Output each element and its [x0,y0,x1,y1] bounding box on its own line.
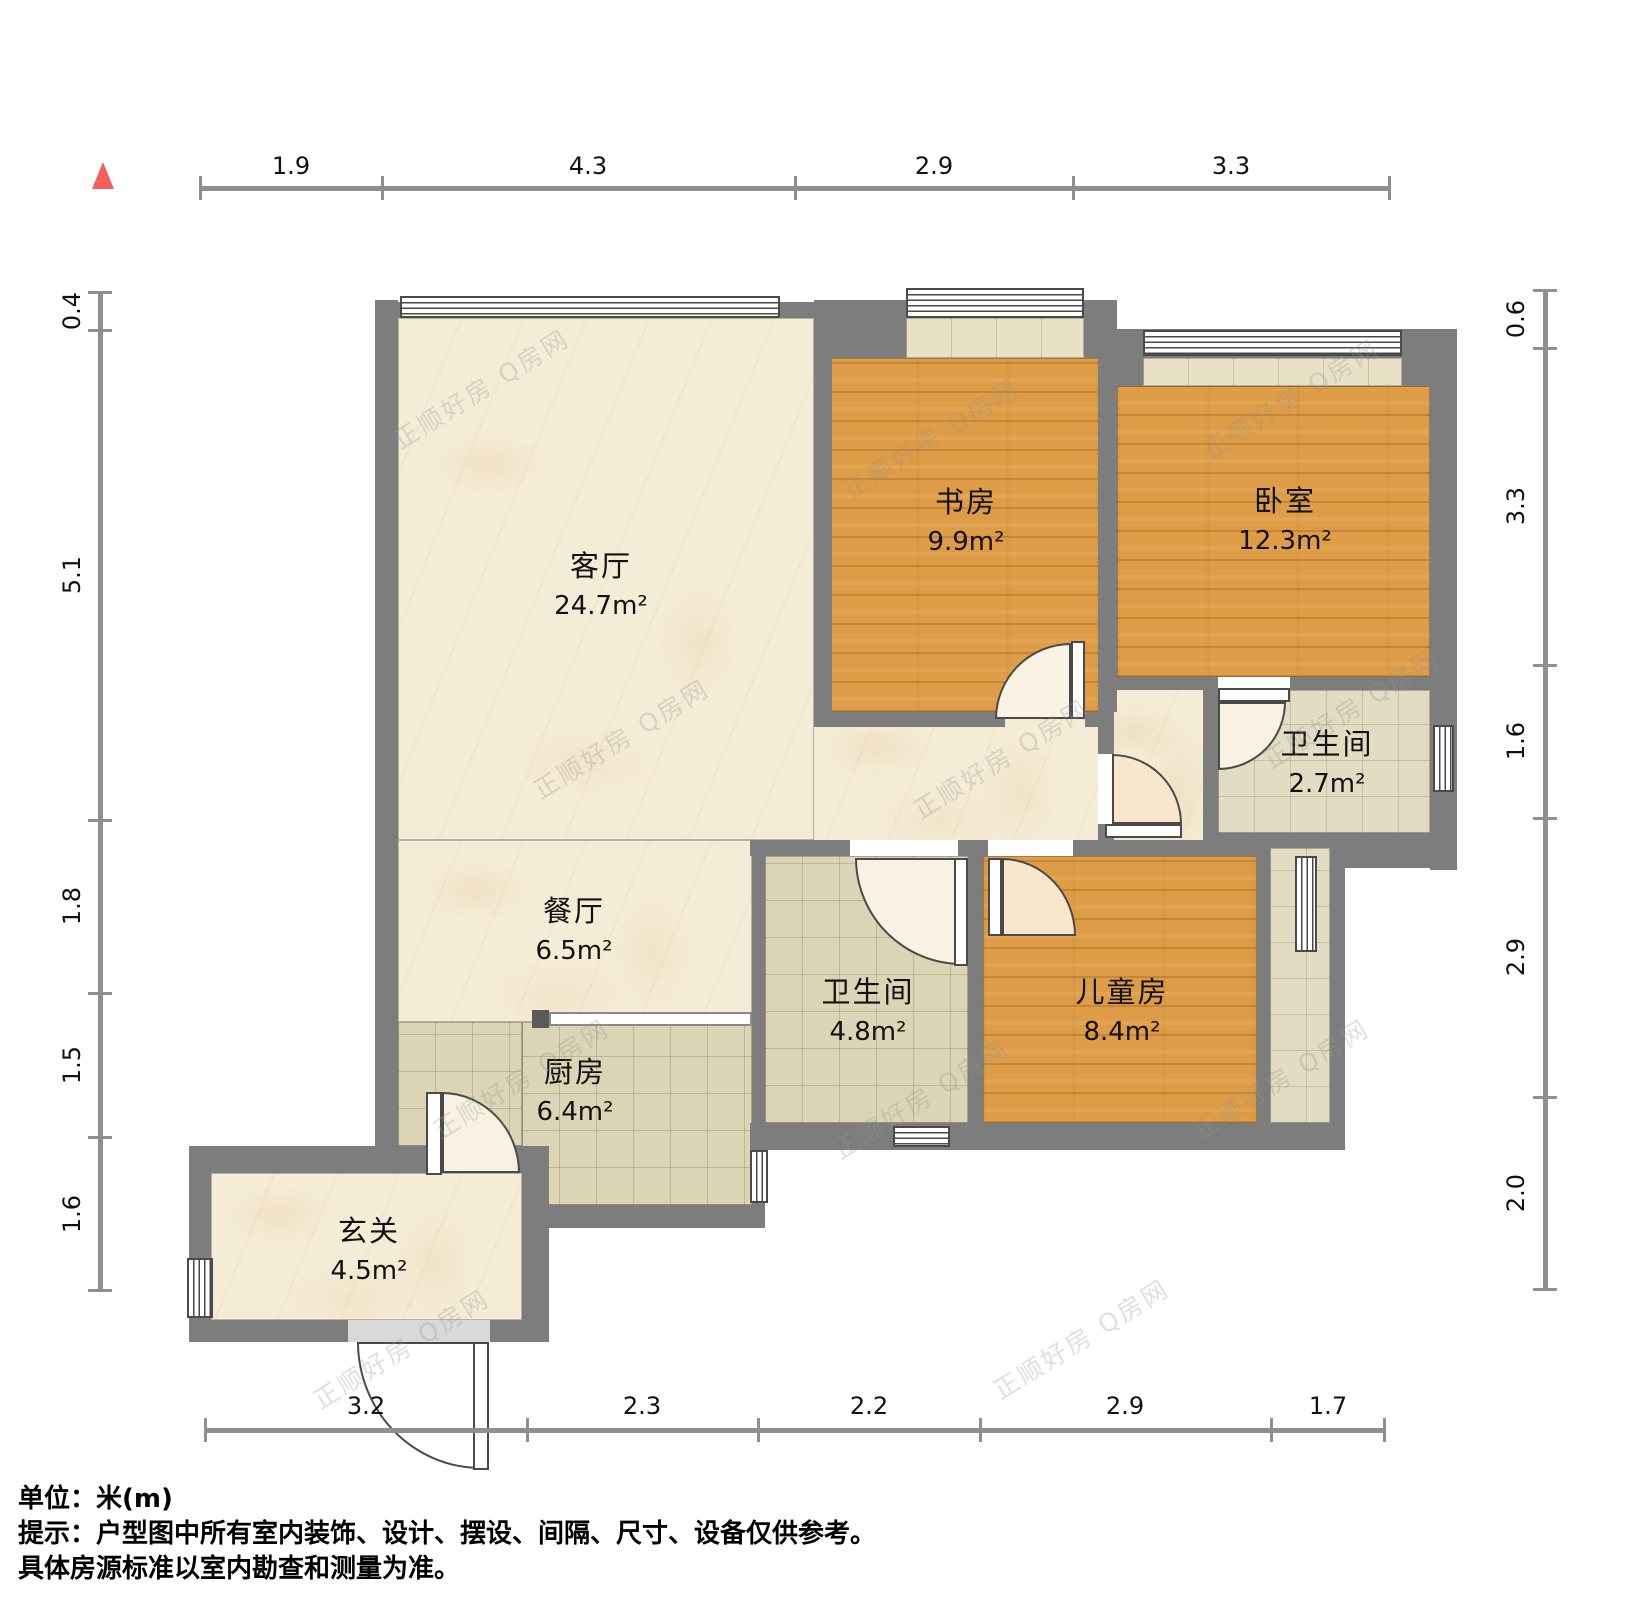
room-name: 书房 [927,479,1004,521]
dim-label-bottom: 1.7 [1309,1392,1347,1420]
door-leaf-bath-main [954,858,968,966]
wall-kids-right [1257,848,1270,1123]
room-name: 厨房 [536,1049,613,1091]
ruler-tick [1533,1096,1557,1099]
room-label-kids: 儿童房 8.4m² [1075,969,1168,1047]
ruler-tick [526,1418,529,1442]
ruler-tick [1533,817,1557,820]
watermark: 正顺好房 Q房网 [986,1269,1176,1406]
dim-label-top: 1.9 [272,152,310,180]
dim-label-top: 2.9 [915,152,953,180]
room-area: 8.4m² [1075,1017,1168,1047]
dim-label-bottom: 2.3 [623,1392,661,1420]
wall-kitchen-bottom [522,1205,765,1228]
ruler-tick [1072,176,1075,200]
wall-bath-small-top [1290,677,1457,690]
room-name: 餐厅 [535,888,612,930]
room-label-entry: 玄关 4.5m² [330,1208,407,1286]
ruler-tick [1383,1418,1386,1442]
ruler-tick [88,291,112,294]
room-name: 客厅 [554,543,648,585]
floor-corridor [814,712,1098,840]
dim-label-left: 0.4 [58,292,86,330]
dim-label-top: 4.3 [569,152,607,180]
door-leaf-study [1071,641,1085,719]
ruler-tick [1533,289,1557,292]
room-label-bedroom: 卧室 12.3m² [1238,478,1332,556]
room-name: 儿童房 [1075,969,1168,1011]
room-area: 4.5m² [330,1256,407,1286]
ruler-tick [1533,347,1557,350]
dim-label-bottom: 2.2 [850,1392,888,1420]
baywindow-sill-study [906,318,1084,358]
window-entry-left [187,1258,213,1318]
dining-kitchen-divider [549,1012,752,1026]
room-label-dining: 餐厅 6.5m² [535,888,612,966]
wall-kids-bottom [750,1123,1345,1150]
wall-entry-bottom [490,1320,522,1342]
footer-disclaimer-2: 具体房源标准以室内勘查和测量为准。 [18,1548,460,1585]
baywindow-sill-bedroom [1143,358,1402,386]
room-label-kitchen: 厨房 6.4m² [536,1049,613,1127]
floorplan-canvas: 客厅 24.7m² 餐厅 6.5m² 厨房 6.4m² 玄关 4.5m² 书房 … [0,0,1642,1618]
window-bedroom-bay [1143,330,1402,356]
door-leaf-bedroom [1105,824,1182,838]
ruler-tick [88,329,112,332]
window-study-bay [906,288,1084,318]
ruler-tick [1533,664,1557,667]
footer-disclaimer-1: 提示：户型图中所有室内装饰、设计、摆设、间隔、尺寸、设备仅供参考。 [18,1513,876,1550]
wall-corridor-bottom [1073,840,1270,856]
ruler-tick [88,1136,112,1139]
dim-label-left: 1.6 [58,1195,86,1233]
footer-unit-note: 单位：米(m) [18,1478,173,1515]
dim-label-bottom: 3.2 [347,1392,385,1420]
dim-label-left: 5.1 [58,556,86,594]
ruler-tick [204,1418,207,1442]
room-area: 2.7m² [1280,769,1373,799]
room-name: 玄关 [330,1208,407,1250]
wall-entry-right [522,1146,549,1342]
door-leaf-kids [988,858,1002,936]
wall-jog-below-bath [1330,848,1457,868]
window-kitchen-right [750,1150,768,1203]
dim-label-left: 1.5 [58,1046,86,1084]
ruler-tick [1270,1418,1273,1442]
room-label-living: 客厅 24.7m² [554,543,648,621]
door-leaf-main-entrance [473,1342,489,1470]
room-label-study: 书房 9.9m² [927,479,1004,557]
ruler-tick [794,176,797,200]
room-label-bath-main: 卫生间 4.8m² [821,969,914,1047]
room-area: 4.8m² [821,1017,914,1047]
ruler-tick [88,1289,112,1292]
window-bath-small-right [1433,725,1454,792]
room-label-bath-small: 卫生间 2.7m² [1280,721,1373,799]
wall-bath-small-left [1203,690,1218,848]
room-name: 卧室 [1238,478,1332,520]
ruler-tick [757,1418,760,1442]
dim-label-left: 1.8 [58,887,86,925]
wall-living-study [814,318,832,712]
ruler-left-line [98,292,103,1291]
ruler-tick [88,819,112,822]
window-utility-shaft [1295,856,1317,952]
wall-bath-kids [968,856,983,1123]
ruler-tick [1388,176,1391,200]
dim-label-bottom: 2.9 [1106,1392,1144,1420]
room-area: 12.3m² [1238,526,1332,556]
wall-corridor-bedroom [1098,356,1114,754]
ruler-tick [1533,1288,1557,1291]
room-area: 6.5m² [535,936,612,966]
dim-label-right: 2.9 [1502,938,1530,976]
room-name: 卫生间 [1280,721,1373,763]
wall-corridor-bottom [750,840,850,856]
wall-bath-small-top [1114,677,1218,690]
divider-handle [532,1010,549,1028]
door-leaf-bath-small [1218,688,1290,702]
wall-living-left [375,300,398,1146]
room-area: 6.4m² [536,1097,613,1127]
wall-entry-bottom [189,1320,348,1342]
ruler-tick [88,992,112,995]
dim-label-right: 3.3 [1502,487,1530,525]
room-name: 卫生间 [821,969,914,1011]
dim-label-top: 3.3 [1212,152,1250,180]
ruler-right-line [1543,290,1548,1289]
window-living-top [400,296,780,318]
room-area: 9.9m² [927,527,1004,557]
dim-label-right: 2.0 [1502,1174,1530,1212]
north-arrow-icon [92,162,114,189]
wall-utility-right [1330,848,1345,1123]
door-leaf-kitchen [426,1092,442,1175]
ruler-tick [979,1418,982,1442]
window-bath-main-bottom [893,1126,950,1147]
threshold-main-door [348,1320,490,1342]
ruler-tick [381,176,384,200]
room-area: 24.7m² [554,591,648,621]
ruler-bottom-line [205,1428,1385,1433]
wall-study-bottom [814,712,1005,727]
dim-label-right: 0.6 [1502,300,1530,338]
ruler-tick [199,176,202,200]
wall-corridor-bottom [958,840,988,856]
dim-label-right: 1.6 [1502,722,1530,760]
wall-entry-top [189,1146,426,1173]
